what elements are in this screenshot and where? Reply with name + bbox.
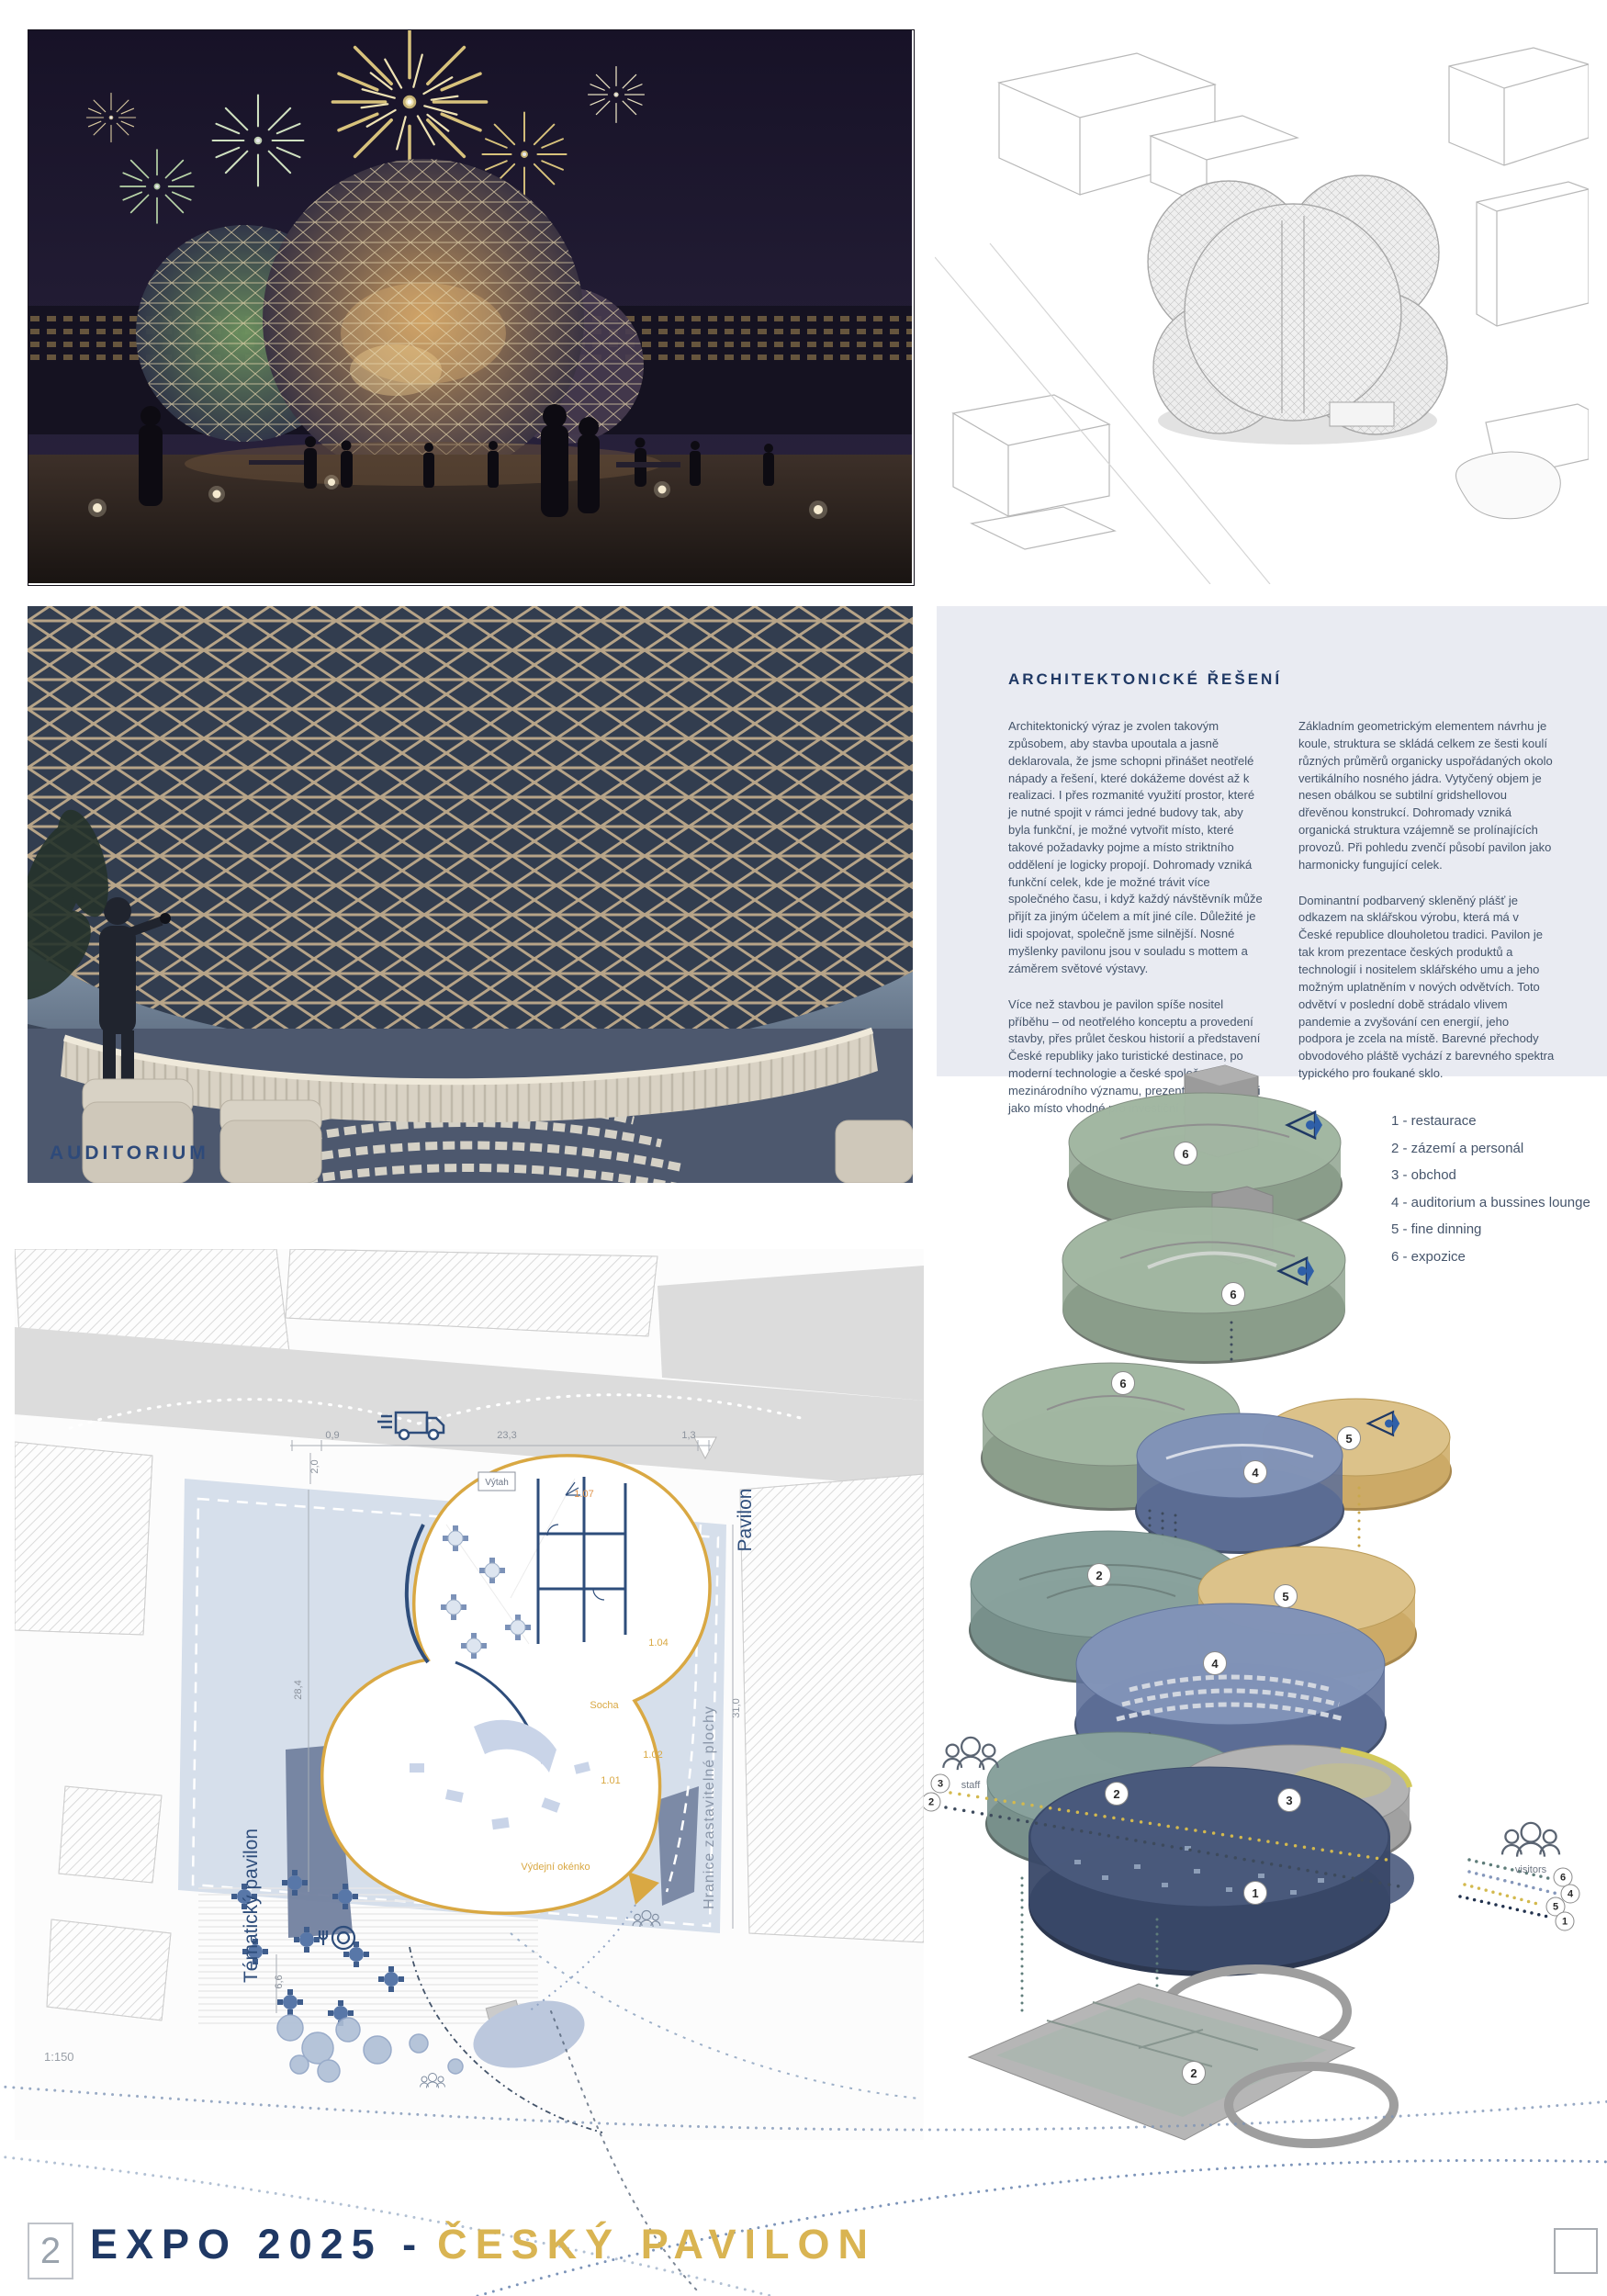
staff-route-badge: 3: [931, 1774, 950, 1794]
staff-route-badge: 2: [922, 1793, 941, 1812]
title-bar: 2 EXPO 2025 -ČESKÝ PAVILON: [0, 2208, 1607, 2296]
legend-item: 2 - zázemí a personál: [1391, 1141, 1590, 1168]
svg-text:1,3: 1,3: [681, 1430, 695, 1441]
level-badge: 4: [1203, 1651, 1227, 1675]
svg-text:1.07: 1.07: [574, 1489, 593, 1500]
level-badge: 5: [1274, 1584, 1298, 1608]
svg-text:Pavilon: Pavilon: [735, 1489, 756, 1552]
title-prefix: EXPO 2025 -: [90, 2221, 424, 2268]
page-title: EXPO 2025 -ČESKÝ PAVILON: [90, 2221, 876, 2268]
staff-label: staff: [961, 1780, 981, 1791]
legend-item: 3 - obchod: [1391, 1167, 1590, 1195]
level-badge: 6: [1174, 1142, 1197, 1165]
gridshell-sphere-cluster: [1148, 175, 1447, 445]
svg-text:6,6: 6,6: [274, 1975, 285, 1988]
svg-text:1.02: 1.02: [643, 1750, 662, 1761]
context-axon-drawing: [935, 28, 1589, 584]
svg-text:1.04: 1.04: [648, 1638, 668, 1649]
level-badge: 5: [1337, 1426, 1361, 1450]
scale-label: 1:150: [44, 2050, 74, 2064]
presentation-board: AUDITORIUM ARCHITEKTONICKÉ ŘEŠENÍ Archit…: [0, 0, 1607, 2296]
svg-text:Socha: Socha: [590, 1700, 619, 1711]
page-number: 2: [28, 2223, 73, 2279]
legend-item: 6 - expozice: [1391, 1249, 1590, 1277]
svg-text:28,4: 28,4: [293, 1680, 304, 1699]
auditorium-graphic: [28, 606, 913, 1183]
svg-text:Hranice zastavitelné plochy: Hranice zastavitelné plochy: [702, 1705, 717, 1909]
staff-icon: [943, 1738, 997, 1770]
svg-text:Výdejní okénko: Výdejní okénko: [521, 1862, 590, 1873]
svg-text:Výtah: Výtah: [485, 1478, 509, 1488]
gridshell-ceiling: [28, 606, 913, 1054]
night-render-image: [28, 29, 915, 586]
level-badge: 4: [1243, 1460, 1267, 1484]
level-badge: 6: [1221, 1282, 1245, 1306]
level-badge: 2: [1105, 1782, 1129, 1806]
visitor-route-badge: 1: [1556, 1912, 1575, 1931]
paragraph: Architektonický výraz je zvolen takovým …: [1008, 718, 1265, 978]
visitors-icon: [1502, 1823, 1559, 1857]
svg-text:0,9: 0,9: [325, 1430, 339, 1441]
legend-item: 5 - fine dinning: [1391, 1221, 1590, 1249]
level-basement: [969, 1969, 1394, 2144]
site-plan: 0,9 23,3 1,3 2,0 28,4 6,6 31,0 Pavilon T…: [15, 1249, 924, 2140]
level-badge: 2: [1182, 2061, 1206, 2085]
level-expo-aud-dine: [981, 1363, 1452, 1554]
svg-text:2,0: 2,0: [309, 1459, 320, 1473]
svg-text:31,0: 31,0: [731, 1698, 742, 1717]
svg-text:Tématický pavilon: Tématický pavilon: [241, 1829, 262, 1983]
auditorium-caption: AUDITORIUM: [50, 1142, 209, 1165]
visitors-label: visitors: [1515, 1864, 1546, 1875]
site-plan-graphic: 0,9 23,3 1,3 2,0 28,4 6,6 31,0 Pavilon T…: [15, 1249, 924, 2140]
program-legend: 1 - restaurace 2 - zázemí a personál 3 -…: [1391, 1113, 1590, 1276]
paragraph: Základním geometrickým elementem návrhu …: [1298, 718, 1556, 874]
architecture-text-panel: ARCHITEKTONICKÉ ŘEŠENÍ Architektonický v…: [937, 606, 1607, 1076]
level-badge: 1: [1243, 1881, 1267, 1905]
night-render-graphic: [28, 30, 912, 583]
legend-item: 4 - auditorium a bussines lounge: [1391, 1195, 1590, 1222]
svg-text:1.01: 1.01: [601, 1775, 620, 1786]
auditorium-render-image: AUDITORIUM: [28, 606, 913, 1183]
svg-text:23,3: 23,3: [497, 1430, 516, 1441]
section-heading: ARCHITEKTONICKÉ ŘEŠENÍ: [1008, 670, 1556, 689]
wireframe-graphic: [935, 28, 1589, 584]
title-accent: ČESKÝ PAVILON: [437, 2221, 876, 2268]
level-badge: 3: [1277, 1788, 1301, 1812]
corner-box: [1554, 2228, 1598, 2274]
level-badge: 2: [1087, 1563, 1111, 1587]
level-badge: 6: [1111, 1371, 1135, 1395]
legend-item: 1 - restaurace: [1391, 1113, 1590, 1141]
